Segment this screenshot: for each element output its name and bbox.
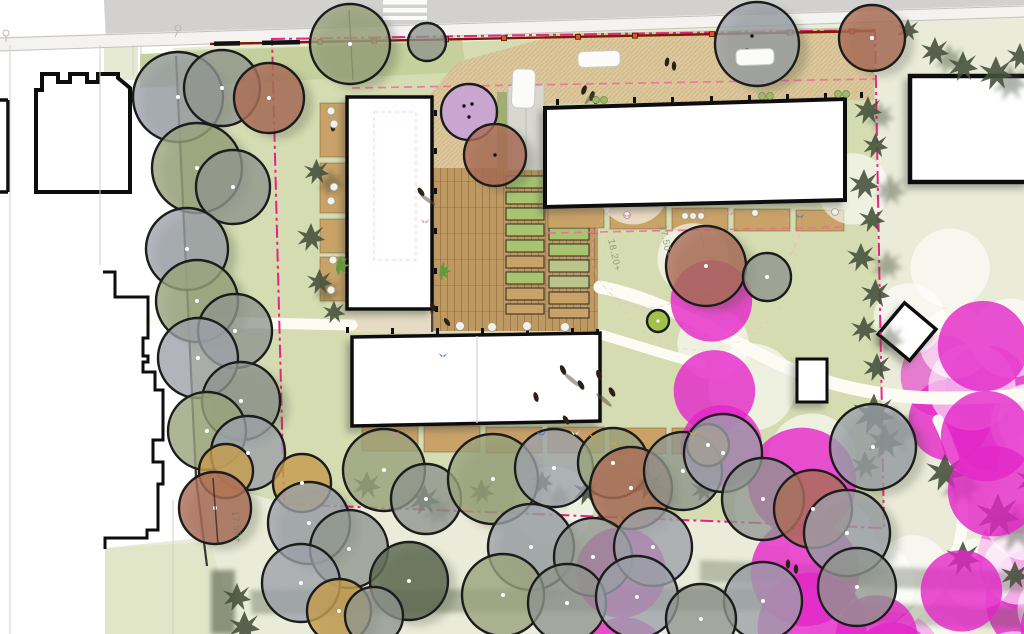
car-parked-vertical <box>511 69 535 109</box>
car-parked-2 <box>736 48 775 65</box>
small-pavilion <box>797 359 827 402</box>
crosswalk <box>383 0 427 20</box>
paving-strip <box>345 312 433 334</box>
building-b <box>545 99 845 207</box>
car-parked-1 <box>578 50 621 67</box>
building-c <box>352 333 600 426</box>
building-a <box>347 97 432 309</box>
site-plan: 17.50+ 18.20+ 17.50+ <box>0 0 1024 634</box>
neighbour-building-north <box>36 74 130 192</box>
site-plan-drawing <box>0 0 1024 634</box>
